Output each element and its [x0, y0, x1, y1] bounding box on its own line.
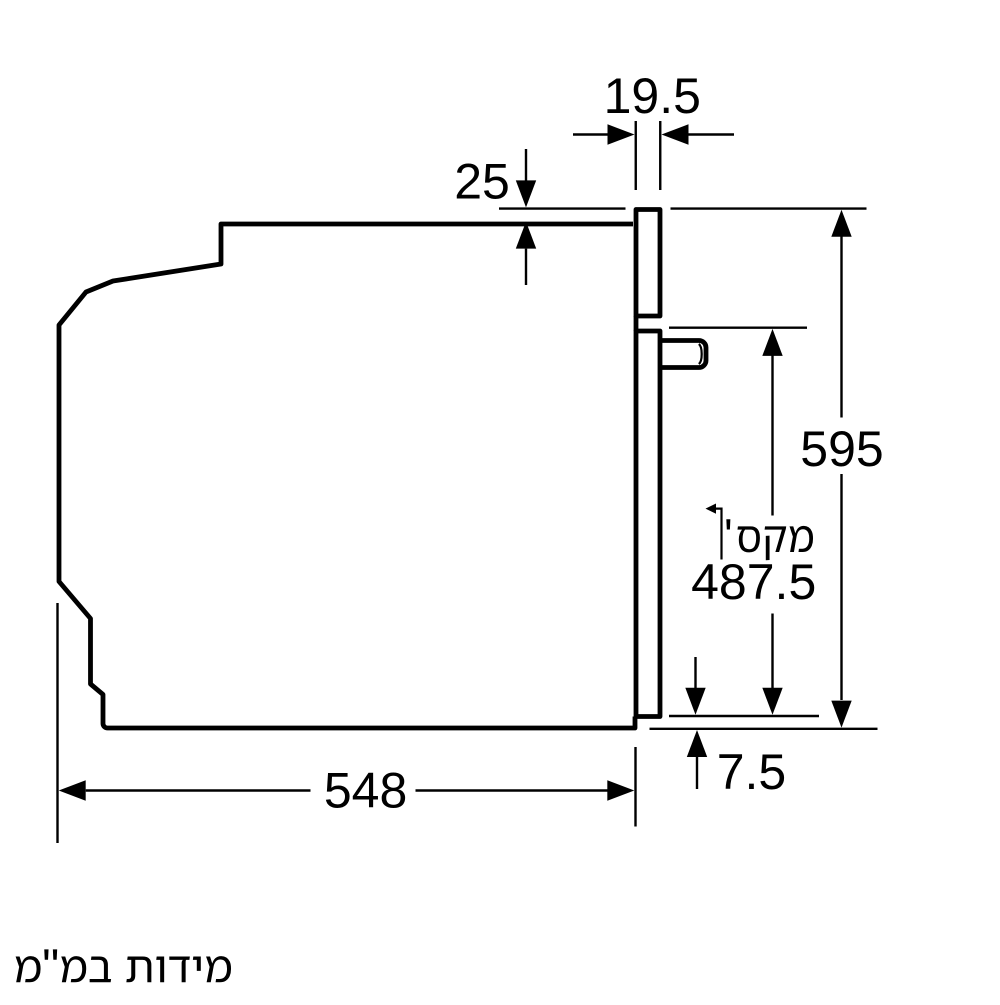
svg-text:487.5: 487.5	[691, 554, 816, 610]
svg-text:7.5: 7.5	[717, 744, 787, 800]
svg-text:19.5: 19.5	[604, 68, 701, 124]
svg-text:25: 25	[454, 154, 510, 210]
svg-text:595: 595	[800, 421, 883, 477]
svg-text:548: 548	[324, 763, 407, 819]
